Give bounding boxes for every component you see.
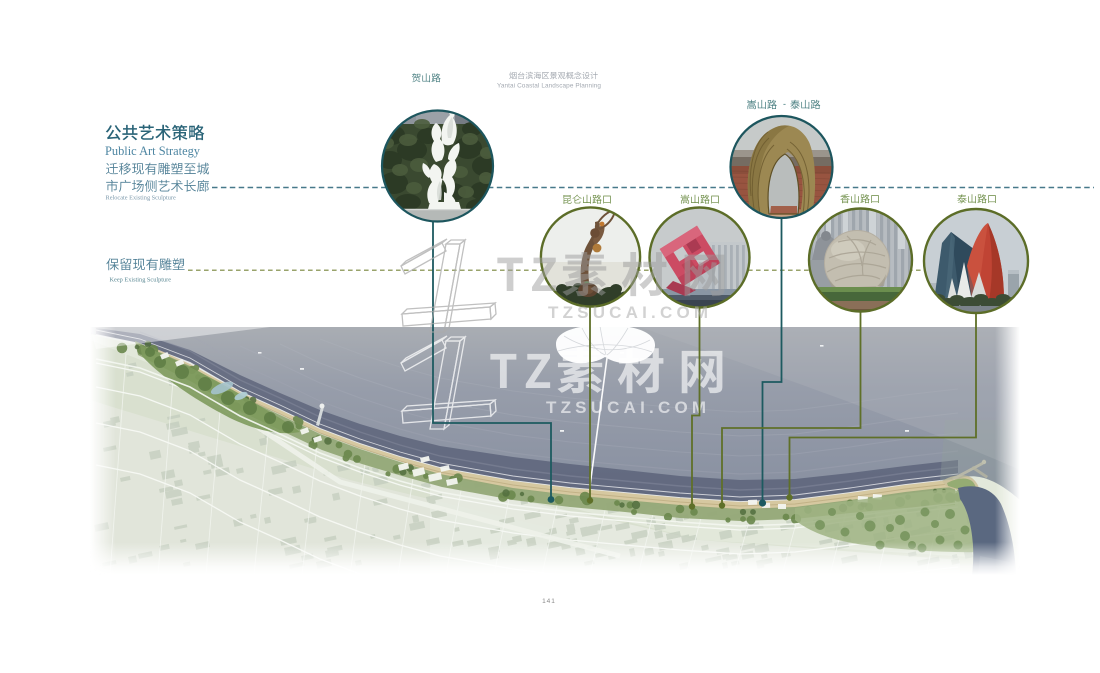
svg-text:Relocate Existing Sculpture: Relocate Existing Sculpture	[106, 195, 177, 202]
svg-text:141: 141	[542, 598, 556, 605]
svg-text:TZSUCAI.COM: TZSUCAI.COM	[548, 303, 712, 322]
svg-text:Yantai Coastal Landscape Plann: Yantai Coastal Landscape Planning	[497, 83, 601, 90]
svg-text:Public Art Strategy: Public Art Strategy	[105, 144, 201, 158]
svg-text:-: -	[783, 99, 786, 109]
svg-text:TZSUCAI.COM: TZSUCAI.COM	[546, 398, 710, 417]
svg-text:Keep Existing Sculpture: Keep Existing Sculpture	[110, 277, 172, 284]
